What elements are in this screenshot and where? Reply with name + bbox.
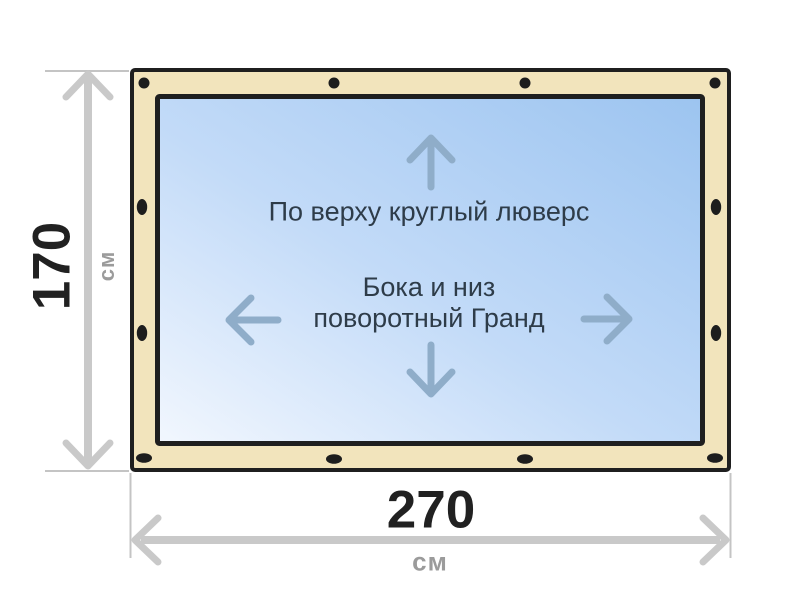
grommet-icon <box>329 78 340 89</box>
top-edge-note: По верху круглый люверс <box>269 197 590 228</box>
fastener-icon <box>711 199 721 215</box>
fastener-icon <box>326 454 342 464</box>
fastener-icon <box>517 454 533 464</box>
sides-bottom-note-line2: поворотный Гранд <box>313 303 544 334</box>
grommet-icon <box>139 78 150 89</box>
fastener-icon <box>136 453 152 463</box>
fastener-icon <box>137 199 147 215</box>
soft-window-diagram: 170 см 270 см По верху круглый люверс Бо… <box>0 0 800 600</box>
sides-bottom-note: Бока и низ поворотный Гранд <box>313 272 544 334</box>
width-unit-label: см <box>412 547 448 578</box>
height-value-label: 170 <box>22 222 83 310</box>
grommet-icon <box>520 78 531 89</box>
fastener-icon <box>137 325 147 341</box>
fastener-icon <box>711 325 721 341</box>
grommet-icon <box>710 78 721 89</box>
height-unit-label: см <box>94 251 120 282</box>
sides-bottom-note-line1: Бока и низ <box>313 272 544 303</box>
width-value-label: 270 <box>387 480 475 541</box>
fastener-icon <box>707 453 723 463</box>
